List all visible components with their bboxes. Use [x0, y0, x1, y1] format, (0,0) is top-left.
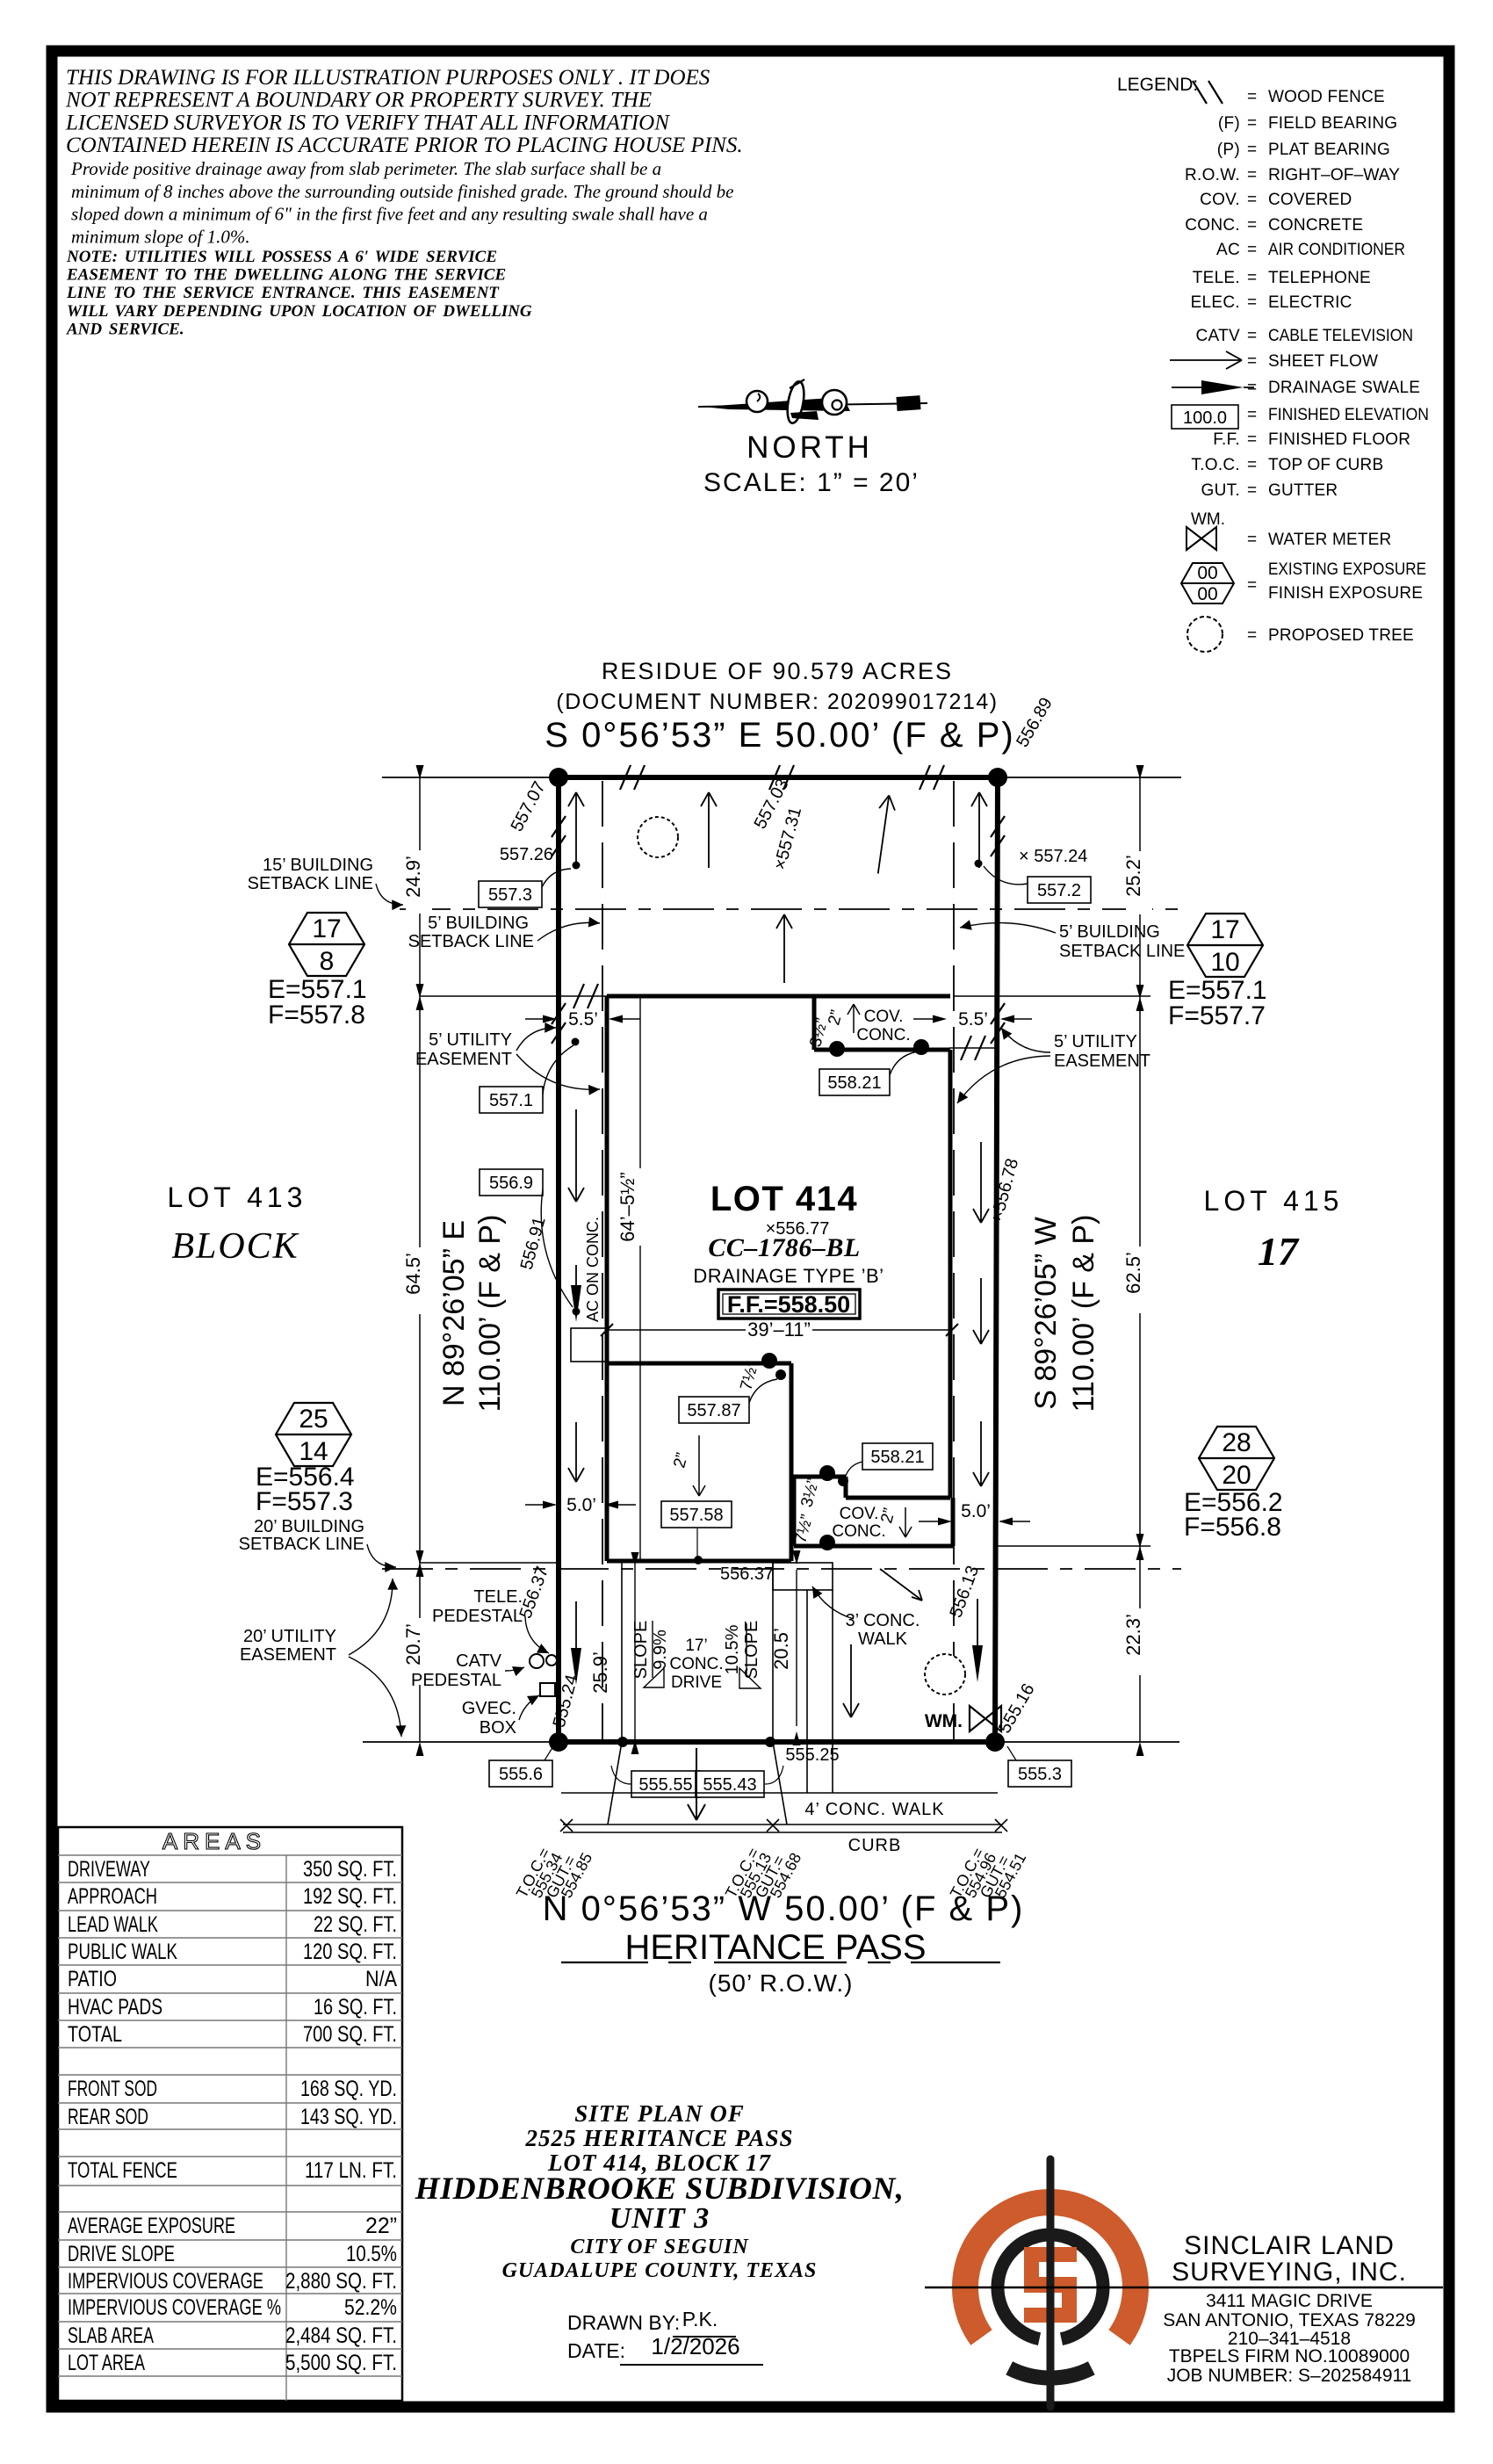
svg-text:GUADALUPE COUNTY, TEXAS: GUADALUPE COUNTY, TEXAS — [502, 2259, 818, 2282]
svg-text:10.5%: 10.5% — [346, 2242, 397, 2266]
svg-text:557.3: 557.3 — [488, 885, 532, 905]
svg-text:TOP OF CURB: TOP OF CURB — [1268, 456, 1383, 474]
svg-text:LOT 415: LOT 415 — [1204, 1185, 1344, 1217]
svg-text:9.9%: 9.9% — [651, 1629, 670, 1670]
svg-text:AND SERVICE.: AND SERVICE. — [66, 320, 184, 338]
svg-text:SETBACK LINE: SETBACK LINE — [239, 1535, 364, 1554]
svg-text:1/2/2026: 1/2/2026 — [651, 2333, 739, 2359]
svg-text:143 SQ. YD.: 143 SQ. YD. — [300, 2105, 397, 2129]
svg-text:AC: AC — [1216, 241, 1240, 259]
svg-text:557.2: 557.2 — [1037, 881, 1081, 900]
svg-text:556.37: 556.37 — [720, 1564, 774, 1584]
svg-text:WM.: WM. — [925, 1711, 963, 1731]
svg-text:00: 00 — [1197, 563, 1217, 583]
svg-text:22.3’: 22.3’ — [1122, 1614, 1144, 1656]
svg-text:2525 HERITANCE PASS: 2525 HERITANCE PASS — [524, 2125, 793, 2151]
svg-text:100.0: 100.0 — [1183, 408, 1227, 428]
svg-text:HIDDENBROOKE SUBDIVISION,: HIDDENBROOKE SUBDIVISION, — [415, 2171, 905, 2206]
svg-text:555.3: 555.3 — [1018, 1765, 1062, 1784]
svg-text:REAR SOD: REAR SOD — [68, 2105, 148, 2129]
svg-text:SLOPE: SLOPE — [742, 1621, 761, 1680]
svg-text:DRIVE SLOPE: DRIVE SLOPE — [68, 2242, 175, 2266]
svg-text:2,484 SQ. FT.: 2,484 SQ. FT. — [285, 2323, 397, 2348]
svg-text:EASEMENT: EASEMENT — [240, 1645, 336, 1665]
svg-text:EASEMENT: EASEMENT — [415, 1050, 512, 1069]
svg-text:N 89°26’05” E: N 89°26’05” E — [437, 1220, 471, 1406]
svg-text:=: = — [1247, 216, 1257, 235]
svg-text:SCALE: 1” = 20’: SCALE: 1” = 20’ — [703, 468, 920, 497]
svg-text:=: = — [1247, 141, 1257, 159]
svg-text:DRAINAGE TYPE ’B’: DRAINAGE TYPE ’B’ — [693, 1265, 884, 1287]
svg-text:F=557.7: F=557.7 — [1168, 1001, 1266, 1030]
svg-text:557.58: 557.58 — [669, 1506, 723, 1525]
svg-text:SINCLAIR LAND: SINCLAIR LAND — [1184, 2231, 1395, 2260]
svg-text:LEAD WALK: LEAD WALK — [68, 1912, 158, 1937]
svg-text:20’ BUILDING: 20’ BUILDING — [254, 1517, 364, 1536]
svg-text:LOT AREA: LOT AREA — [68, 2351, 145, 2375]
svg-text:DRAWN BY:: DRAWN BY: — [567, 2311, 680, 2334]
svg-text:LOT 413: LOT 413 — [168, 1181, 307, 1213]
svg-text:SAN ANTONIO, TEXAS 78229: SAN ANTONIO, TEXAS 78229 — [1163, 2310, 1416, 2330]
svg-text:5,500 SQ. FT.: 5,500 SQ. FT. — [285, 2351, 397, 2375]
svg-text:22 SQ. FT.: 22 SQ. FT. — [314, 1912, 397, 1937]
svg-text:HVAC PADS: HVAC PADS — [68, 1995, 162, 2020]
svg-text:5.5’: 5.5’ — [568, 1009, 598, 1030]
svg-text:R.O.W.: R.O.W. — [1185, 166, 1240, 184]
svg-text:APPROACH: APPROACH — [68, 1884, 157, 1909]
svg-text:=: = — [1247, 430, 1257, 449]
svg-text:minimum of 8 inches above the: minimum of 8 inches above the surroundin… — [71, 181, 733, 202]
svg-text:64.5’: 64.5’ — [402, 1253, 424, 1295]
svg-text:ELECTRIC: ELECTRIC — [1268, 293, 1352, 312]
svg-text:F=557.3: F=557.3 — [256, 1487, 353, 1516]
svg-text:557.87: 557.87 — [687, 1401, 740, 1420]
svg-text:F.F.: F.F. — [1213, 430, 1240, 449]
svg-text:192 SQ. FT.: 192 SQ. FT. — [303, 1884, 397, 1909]
svg-text:COVERED: COVERED — [1268, 191, 1352, 209]
svg-text:=: = — [1247, 576, 1257, 595]
svg-text:WM.: WM. — [1191, 510, 1225, 529]
svg-text:JOB NUMBER: S–202584911: JOB NUMBER: S–202584911 — [1167, 2366, 1412, 2386]
svg-text:HERITANCE PASS: HERITANCE PASS — [624, 1928, 926, 1967]
svg-text:GUTTER: GUTTER — [1268, 481, 1338, 500]
svg-text:25.2’: 25.2’ — [1122, 855, 1144, 897]
svg-text:F.F.=558.50: F.F.=558.50 — [727, 1291, 850, 1318]
svg-text:sloped down a minimum of 6" in: sloped down a minimum of 6" in the first… — [71, 204, 708, 225]
svg-text:UNIT 3: UNIT 3 — [609, 2202, 710, 2235]
svg-text:=: = — [1247, 166, 1257, 184]
svg-text:CONTAINED HEREIN IS ACCURATE P: CONTAINED HEREIN IS ACCURATE PRIOR TO PL… — [66, 134, 743, 157]
svg-text:DRIVE: DRIVE — [671, 1673, 722, 1692]
svg-text:× 557.24: × 557.24 — [1019, 847, 1087, 866]
svg-text:EXISTING EXPOSURE: EXISTING EXPOSURE — [1268, 560, 1426, 579]
svg-text:17: 17 — [1258, 1229, 1300, 1274]
svg-text:555.25: 555.25 — [785, 1745, 839, 1765]
svg-text:=: = — [1247, 114, 1257, 133]
svg-text:SLOPE: SLOPE — [631, 1621, 651, 1680]
svg-text:=: = — [1247, 626, 1257, 645]
svg-text:17: 17 — [312, 914, 341, 943]
svg-text:15’ BUILDING: 15’ BUILDING — [263, 856, 373, 875]
svg-text:COV.: COV. — [1200, 191, 1240, 209]
svg-text:TELEPHONE: TELEPHONE — [1268, 269, 1371, 287]
svg-text:TELE.: TELE. — [473, 1587, 523, 1607]
svg-text:SETBACK LINE: SETBACK LINE — [248, 874, 373, 893]
svg-text:110.00’ (F & P): 110.00’ (F & P) — [1067, 1215, 1100, 1413]
svg-text:SETBACK LINE: SETBACK LINE — [408, 932, 534, 951]
svg-text:24.9’: 24.9’ — [402, 856, 424, 898]
svg-text:CURB: CURB — [848, 1836, 902, 1855]
svg-text:N 0°56’53” W 50.00’ (F &: N 0°56’53” W 50.00’ (F & P) — [543, 1890, 1025, 1928]
svg-text:(50’ R.O.W.): (50’ R.O.W.) — [709, 1969, 854, 1997]
svg-text:CATV: CATV — [1196, 327, 1240, 345]
svg-text:CATV: CATV — [456, 1651, 502, 1671]
svg-text:5’ BUILDING: 5’ BUILDING — [1059, 922, 1160, 942]
svg-text:LOT 414: LOT 414 — [710, 1180, 858, 1218]
svg-text:IMPERVIOUS COVERAGE: IMPERVIOUS COVERAGE — [68, 2269, 263, 2294]
svg-text:25.9’: 25.9’ — [589, 1651, 611, 1694]
svg-text:AVERAGE EXPOSURE: AVERAGE EXPOSURE — [68, 2214, 235, 2238]
svg-text:DRAINAGE SWALE: DRAINAGE SWALE — [1268, 379, 1420, 397]
svg-text:CONCRETE: CONCRETE — [1268, 216, 1363, 235]
svg-text:AC ON CONC.: AC ON CONC. — [584, 1217, 602, 1322]
svg-text:AIR CONDITIONER: AIR CONDITIONER — [1268, 241, 1405, 259]
svg-text:N/A: N/A — [365, 1967, 397, 1991]
svg-text:FINISHED ELEVATION: FINISHED ELEVATION — [1268, 406, 1429, 424]
svg-text:700 SQ. FT.: 700 SQ. FT. — [303, 2022, 397, 2047]
svg-text:20.5’: 20.5’ — [770, 1628, 792, 1670]
svg-text:Provide positive drainage away: Provide positive drainage away from slab… — [70, 158, 661, 179]
svg-text:PEDESTAL: PEDESTAL — [411, 1671, 501, 1690]
svg-text:20: 20 — [1222, 1461, 1251, 1490]
svg-text:SLAB AREA: SLAB AREA — [68, 2323, 154, 2348]
svg-text:PATIO: PATIO — [68, 1967, 117, 1991]
svg-text:=: = — [1247, 456, 1257, 474]
svg-text:PROPOSED TREE: PROPOSED TREE — [1268, 626, 1414, 645]
svg-text:(P): (P) — [1217, 141, 1240, 159]
svg-text:WATER METER: WATER METER — [1268, 531, 1391, 549]
svg-text:22”: 22” — [365, 2214, 397, 2238]
svg-text:556.9: 556.9 — [489, 1174, 533, 1193]
svg-text:WOOD FENCE: WOOD FENCE — [1268, 88, 1385, 106]
svg-text:minimum slope of 1.0%.: minimum slope of 1.0%. — [71, 226, 250, 247]
svg-text:20.7’: 20.7’ — [402, 1623, 424, 1666]
svg-text:=: = — [1247, 88, 1257, 106]
svg-text:5’ UTILITY: 5’ UTILITY — [429, 1030, 512, 1050]
svg-text:16 SQ. FT.: 16 SQ. FT. — [314, 1995, 397, 2020]
svg-text:RIGHT–OF–WAY: RIGHT–OF–WAY — [1268, 166, 1400, 184]
svg-text:5’ BUILDING: 5’ BUILDING — [428, 914, 529, 933]
svg-text:FRONT SOD: FRONT SOD — [68, 2077, 157, 2101]
svg-text:THIS DRAWING IS FOR ILLUSTRATI: THIS DRAWING IS FOR ILLUSTRATION PURPOSE… — [66, 66, 710, 90]
svg-text:IMPERVIOUS COVERAGE %: IMPERVIOUS COVERAGE % — [68, 2295, 281, 2320]
svg-text:117 LN. FT.: 117 LN. FT. — [305, 2158, 397, 2183]
svg-text:557.1: 557.1 — [489, 1091, 533, 1110]
svg-text:5.0’: 5.0’ — [566, 1495, 596, 1515]
svg-text:=: = — [1247, 406, 1257, 424]
svg-text:110.00’ (F & P): 110.00’ (F & P) — [473, 1215, 507, 1413]
svg-text:TOTAL FENCE: TOTAL FENCE — [68, 2158, 177, 2183]
svg-text:120 SQ. FT.: 120 SQ. FT. — [303, 1940, 397, 1964]
svg-text:52.2%: 52.2% — [344, 2295, 397, 2320]
svg-text:168 SQ. YD.: 168 SQ. YD. — [300, 2077, 397, 2101]
svg-text:28: 28 — [1222, 1428, 1251, 1457]
svg-text:=: = — [1247, 191, 1257, 209]
svg-text:=: = — [1247, 531, 1257, 549]
svg-text:5.0’: 5.0’ — [961, 1501, 991, 1521]
svg-text:17’: 17’ — [685, 1637, 707, 1655]
svg-text:17: 17 — [1210, 915, 1239, 944]
svg-text:555.43: 555.43 — [703, 1775, 756, 1795]
svg-text:555.6: 555.6 — [499, 1765, 543, 1784]
svg-text:(DOCUMENT NUMBER: 2020990172: (DOCUMENT NUMBER: 202099017214) — [556, 690, 998, 714]
svg-text:COV.: COV. — [864, 1008, 904, 1026]
svg-text:T.O.C.: T.O.C. — [1191, 456, 1240, 474]
svg-text:=: = — [1247, 293, 1257, 312]
svg-text:TELE.: TELE. — [1193, 269, 1240, 287]
svg-text:FIELD BEARING: FIELD BEARING — [1268, 114, 1397, 133]
svg-text:PLAT BEARING: PLAT BEARING — [1268, 141, 1390, 159]
svg-text:PEDESTAL: PEDESTAL — [432, 1607, 523, 1626]
svg-text:20’ UTILITY: 20’ UTILITY — [243, 1627, 336, 1646]
svg-text:CC–1786–BL: CC–1786–BL — [708, 1233, 860, 1262]
svg-text:3411 MAGIC DRIVE: 3411 MAGIC DRIVE — [1206, 2291, 1373, 2311]
svg-text:GVEC.: GVEC. — [462, 1699, 516, 1718]
svg-text:CONC.: CONC. — [1185, 216, 1240, 235]
svg-text:NOTE: UTILITIES WILL POSSESS A: NOTE: UTILITIES WILL POSSESS A 6' WIDE S… — [66, 248, 497, 266]
svg-text:=: = — [1247, 352, 1257, 371]
svg-text:NORTH: NORTH — [746, 430, 873, 465]
svg-text:LEGEND:: LEGEND: — [1117, 75, 1198, 95]
svg-text:DRIVEWAY: DRIVEWAY — [68, 1857, 150, 1882]
svg-text:62.5’: 62.5’ — [1122, 1252, 1144, 1294]
svg-text:BOX: BOX — [480, 1718, 516, 1738]
svg-text:CONC.: CONC. — [856, 1026, 910, 1044]
svg-text:ELEC.: ELEC. — [1191, 293, 1240, 312]
svg-text:S 89°26’05” W: S 89°26’05” W — [1029, 1217, 1063, 1410]
svg-text:S 0°56’53” E 50.00’ (F &: S 0°56’53” E 50.00’ (F & P) — [545, 716, 1014, 755]
svg-text:CONC.: CONC. — [832, 1522, 885, 1541]
svg-text:SITE PLAN OF: SITE PLAN OF — [574, 2100, 745, 2127]
svg-text:FINISH EXPOSURE: FINISH EXPOSURE — [1268, 584, 1423, 603]
svg-text:RESIDUE OF 90.579 ACRES: RESIDUE OF 90.579 ACRES — [602, 658, 953, 684]
svg-text:SHEET FLOW: SHEET FLOW — [1268, 352, 1378, 371]
svg-text:CABLE TELEVISION: CABLE TELEVISION — [1268, 327, 1413, 345]
svg-text:FINISHED FLOOR: FINISHED FLOOR — [1268, 430, 1410, 449]
svg-text:558.21: 558.21 — [827, 1073, 881, 1093]
svg-text:3’ CONC.: 3’ CONC. — [846, 1611, 920, 1630]
svg-text:8: 8 — [320, 947, 335, 976]
svg-text:BLOCK: BLOCK — [171, 1226, 299, 1267]
svg-text:2,880 SQ. FT.: 2,880 SQ. FT. — [285, 2269, 397, 2294]
svg-text:=: = — [1247, 327, 1257, 345]
svg-text:CONC.: CONC. — [669, 1655, 723, 1673]
svg-text:=: = — [1247, 241, 1257, 259]
svg-text:AREAS: AREAS — [162, 1828, 266, 1854]
svg-text:WILL VARY DEPENDING UPON LOCAT: WILL VARY DEPENDING UPON LOCATION OF DWE… — [67, 302, 532, 321]
svg-text:NOT REPRESENT A BOUNDARY OR PR: NOT REPRESENT A BOUNDARY OR PROPERTY SUR… — [65, 89, 652, 112]
svg-text:00: 00 — [1197, 584, 1217, 604]
svg-text:PUBLIC WALK: PUBLIC WALK — [68, 1940, 177, 1964]
svg-text:EASEMENT TO THE DWELLING ALONG: EASEMENT TO THE DWELLING ALONG THE SERVI… — [66, 266, 506, 285]
svg-text:CITY OF SEGUIN: CITY OF SEGUIN — [570, 2236, 749, 2258]
svg-text:SURVEYING, INC.: SURVEYING, INC. — [1172, 2258, 1407, 2287]
svg-text:558.21: 558.21 — [870, 1448, 924, 1467]
svg-text:5.5’: 5.5’ — [958, 1009, 988, 1030]
svg-text:COV.: COV. — [840, 1505, 879, 1523]
svg-text:EASEMENT: EASEMENT — [1054, 1051, 1150, 1071]
svg-text:SETBACK LINE: SETBACK LINE — [1059, 942, 1185, 961]
svg-text:(F): (F) — [1218, 114, 1240, 133]
svg-text:4’ CONC. WALK: 4’ CONC. WALK — [804, 1800, 944, 1819]
svg-text:LINE TO THE SERVICE ENTRANCE.: LINE TO THE SERVICE ENTRANCE. THIS EASEM… — [66, 284, 500, 302]
svg-text:TBPELS FIRM NO.10089000: TBPELS FIRM NO.10089000 — [1169, 2346, 1410, 2366]
svg-text:TOTAL: TOTAL — [68, 2022, 122, 2047]
svg-text:555.55: 555.55 — [638, 1775, 692, 1795]
svg-text:25: 25 — [299, 1405, 328, 1434]
svg-text:WALK: WALK — [858, 1629, 908, 1649]
svg-text:GUT.: GUT. — [1201, 481, 1240, 500]
svg-text:F=556.8: F=556.8 — [1184, 1513, 1281, 1542]
svg-text:=: = — [1247, 269, 1257, 287]
svg-text:350 SQ. FT.: 350 SQ. FT. — [303, 1857, 397, 1882]
svg-text:10: 10 — [1210, 948, 1239, 977]
svg-text:39’–11”: 39’–11” — [747, 1319, 811, 1340]
svg-text:=: = — [1247, 481, 1257, 500]
svg-text:557.26: 557.26 — [500, 845, 553, 864]
svg-text:DATE:: DATE: — [567, 2339, 625, 2362]
svg-text:LICENSED SURVEYOR IS TO VERIFY: LICENSED SURVEYOR IS TO VERIFY THAT ALL … — [65, 111, 670, 134]
svg-text:64’–5½”: 64’–5½” — [617, 1172, 638, 1242]
svg-text:P.K.: P.K. — [682, 2308, 718, 2330]
svg-text:5’ UTILITY: 5’ UTILITY — [1054, 1032, 1137, 1051]
svg-text:F=557.8: F=557.8 — [268, 1001, 365, 1030]
